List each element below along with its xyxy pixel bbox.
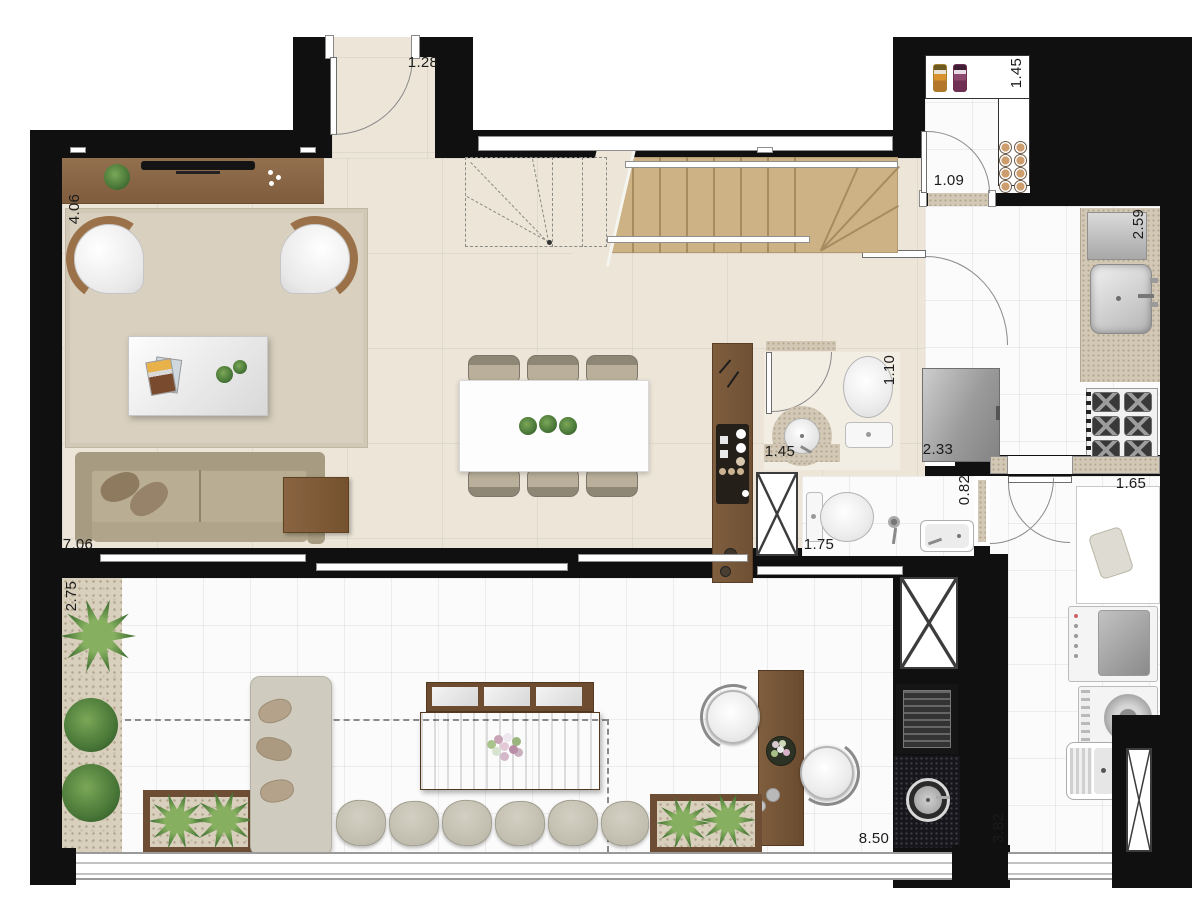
- bar-stool-2: [800, 746, 854, 800]
- entry-jamb-left: [325, 35, 334, 59]
- stove-controls: [1086, 392, 1091, 456]
- dim-living-length: 7.06: [53, 537, 103, 553]
- garden-plant-2: [64, 698, 118, 752]
- terrace-window-band: [62, 852, 952, 880]
- service-window-sill-left: [990, 456, 1008, 474]
- entry-opening: [333, 37, 413, 57]
- stair-projection-div1: [552, 157, 553, 247]
- dim-lavabo-length: 1.10: [882, 345, 898, 395]
- console-plant: [104, 164, 130, 190]
- stove-burner-1: [1092, 392, 1120, 412]
- coffee-table-plant-2: [233, 360, 247, 374]
- armchair-right-cushion: [280, 224, 350, 294]
- wine-rack-slot-5: [999, 167, 1012, 180]
- outdoor-cushion-3: [441, 799, 493, 847]
- dim-service-counter: 1.65: [1106, 476, 1156, 492]
- pantry-door-threshold: [928, 193, 990, 206]
- armchair-left-cushion: [74, 224, 144, 294]
- dining-table-plant-3: [559, 417, 577, 435]
- gourmet-sink-drain: [926, 798, 930, 802]
- dining-table-plant-2: [539, 415, 557, 433]
- dim-bathroom-door: 0.82: [957, 465, 973, 515]
- outdoor-cushion-5: [547, 799, 599, 848]
- lavabo-toilet-button: [866, 432, 871, 437]
- outdoor-sofa-back: [250, 676, 332, 856]
- lavabo-door-threshold: [766, 341, 836, 351]
- outdoor-bench-panel-3: [536, 687, 582, 706]
- dim-entry-door: 1.28: [398, 55, 448, 71]
- tv-stand: [176, 171, 220, 174]
- grill-grate: [903, 690, 951, 748]
- sofa-seat-divider: [199, 470, 201, 528]
- dining-table-plant-1: [519, 417, 537, 435]
- sliding-door-pane-2: [316, 563, 568, 571]
- washing-machine-panel: [1081, 690, 1090, 750]
- bathroom-toilet-bowl: [820, 492, 874, 542]
- dim-refrigerator-niche: 2.33: [913, 442, 963, 458]
- sofa-front-cushion: [92, 522, 308, 542]
- stair-top-window: [478, 136, 893, 151]
- outdoor-table: [420, 712, 600, 790]
- kitchen-sink-drain: [1116, 296, 1121, 301]
- wine-rack-slot-7: [999, 180, 1012, 193]
- bar-decor-dot-2: [720, 566, 731, 577]
- refrigerator-handle: [996, 406, 1000, 420]
- coffee-tray-cup-1: [736, 429, 746, 439]
- wall-vent-3: [757, 147, 773, 153]
- wine-rack-slot-3: [999, 154, 1012, 167]
- wine-rack-slot-4: [1014, 154, 1027, 167]
- food-package-2: [953, 64, 967, 92]
- outdoor-bench-panel-1: [432, 687, 478, 706]
- dryer-controls: [1074, 614, 1078, 618]
- flower-vase-flowers: [777, 746, 784, 753]
- wall-service-corner: [1112, 715, 1192, 888]
- bathroom-sink-basin: [925, 524, 969, 548]
- bathroom-door-threshold: [978, 480, 986, 542]
- service-window-band: [1008, 852, 1116, 880]
- bar-decor-circle-1: [766, 788, 780, 802]
- outdoor-bench-panel-2: [484, 687, 530, 706]
- wine-rack-slot-8: [1014, 180, 1027, 193]
- dim-terrace-width: 8.50: [849, 831, 899, 847]
- coffee-tray-dots: [719, 468, 726, 475]
- shaft-service: [1126, 748, 1152, 852]
- wine-rack-slot-1: [999, 141, 1012, 154]
- stair-railing-top: [625, 161, 898, 168]
- wall-bottom-left-corner: [30, 848, 76, 885]
- floor-plan-canvas: 1.28 4.06 7.06 2.75 1.45 1.09 2.59 1.10 …: [0, 0, 1200, 908]
- food-package-1: [933, 64, 947, 92]
- service-door-opening: [1008, 456, 1072, 474]
- armchair-right: [272, 216, 360, 304]
- dim-lavabo-width: 1.45: [755, 444, 805, 460]
- dim-terrace-depth: 2.75: [64, 571, 80, 621]
- wine-rack-slot-2: [1014, 141, 1027, 154]
- sliding-door-pane-3: [578, 554, 748, 562]
- bathroom-sink-drain: [957, 534, 961, 538]
- stair-projection-dot: [547, 240, 552, 245]
- laundry-tank-ribs: [1070, 748, 1092, 794]
- kitchen-faucet: [1138, 294, 1154, 298]
- stair-railing-mid: [607, 236, 810, 243]
- dim-living-width: 4.06: [67, 184, 83, 234]
- dim-pantry-width: 1.45: [1009, 48, 1025, 98]
- coffee-tray-box-1: [720, 436, 728, 444]
- sliding-door-pane-4: [757, 566, 903, 575]
- dim-bathroom-length: 1.75: [794, 537, 844, 553]
- outdoor-table-flowers: [500, 742, 509, 751]
- bathroom-toilet-button: [811, 514, 816, 519]
- tv: [141, 161, 255, 170]
- wall-living-top: [30, 130, 332, 158]
- stove-burner-4: [1124, 416, 1152, 436]
- wall-left: [30, 130, 62, 885]
- kitchen-faucet-handle-1: [1150, 278, 1158, 283]
- coffee-tray-cup-3: [736, 457, 745, 466]
- sofa-side-table: [283, 477, 349, 533]
- shaft-terrace: [900, 577, 958, 669]
- laundry-tank-drain: [1101, 768, 1106, 773]
- shaft-bathroom: [756, 472, 798, 556]
- outdoor-cushion-4: [494, 800, 546, 847]
- stove-burner-2: [1124, 392, 1152, 412]
- garden-plant-3: [62, 764, 120, 822]
- service-window-sill-right: [1072, 456, 1160, 474]
- shower-head: [888, 516, 900, 528]
- coffee-table-plant-1: [216, 366, 233, 383]
- outdoor-cushion-1: [335, 799, 387, 848]
- kitchen-sink: [1090, 264, 1152, 334]
- dim-pantry-door: 1.09: [924, 173, 974, 189]
- dryer-door: [1098, 610, 1150, 676]
- sofa-back: [75, 452, 325, 472]
- wall-vent-2: [300, 147, 316, 153]
- dim-kitchen-counter: 2.59: [1131, 199, 1147, 249]
- coffee-tray-cup-2: [736, 443, 746, 453]
- dim-service-length: 3.82: [991, 803, 1007, 853]
- coffee-tray-box-2: [720, 450, 728, 458]
- stove-burner-3: [1092, 416, 1120, 436]
- kitchen-faucet-handle-2: [1150, 302, 1158, 307]
- sofa-arm-left: [75, 452, 93, 544]
- stair-projection-div2: [582, 157, 583, 247]
- bar-stool-1: [706, 690, 760, 744]
- lavabo-basin-drain: [800, 434, 804, 438]
- console-decor-dots: [268, 170, 273, 175]
- sliding-door-pane-1: [100, 554, 306, 562]
- wine-rack-slot-6: [1014, 167, 1027, 180]
- wall-vent-1: [70, 147, 86, 153]
- coffee-table-magazine-1: [145, 358, 177, 396]
- gourmet-faucet: [936, 796, 950, 799]
